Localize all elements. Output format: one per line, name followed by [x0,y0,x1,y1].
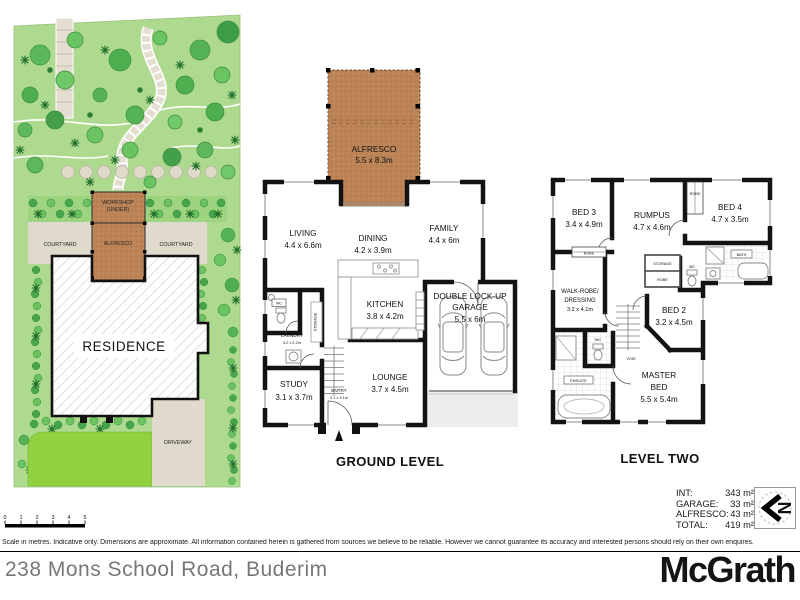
bath-label-box: BATH [731,250,752,258]
bed3-room-label: BED 3 [572,207,596,217]
scale-tick: 1 [19,515,22,521]
workshop-label-2: (UNDER) [107,207,130,213]
mcgrath-logo: McGrath [659,549,795,591]
area-label: ALFRESCO: [676,509,729,520]
site-alfresco-label: ALFRESCO [104,241,133,247]
area-label: GARAGE: [676,499,718,510]
storage-closet: STORAGE [311,302,322,342]
corridor-wc-label: WC [595,338,602,342]
ground-level-title: GROUND LEVEL [336,454,444,469]
entry-room-label: ENTRY [331,388,347,393]
robe-label-bed3: ROBE [584,252,595,256]
area-value: 33 m² [730,499,754,510]
scale-tick: 0 [3,515,6,521]
void-label: VOID [626,357,636,361]
area-value: 43 m² [730,509,754,520]
area-row-total: TOTAL:419 m² [676,520,754,531]
site-workshop-alfresco: WORKSHOP (UNDER) ALFRESCO [91,191,147,281]
storage-label: STORAGE [653,262,672,266]
driveway-label: DRIVEWAY [164,440,192,446]
area-label: TOTAL: [676,520,708,531]
floorplan-sheet: COURTYARD COURTYARD [0,0,800,600]
disclaimer-text: Scale in metres. Indicative only. Dimens… [2,539,799,546]
kitchen-room-dims: 3.8 x 4.2m [366,312,404,321]
study-room-label: STUDY [280,379,309,389]
bed3-room-dims: 3.4 x 4.9m [565,220,603,229]
master-room-label-1: MASTER [642,370,677,380]
mid-wc [687,270,697,286]
scale-tick: 3 [51,515,54,521]
ensuite-label-box: ENSUITE [564,376,593,384]
living-room-label: LIVING [289,228,316,238]
area-row-garage: GARAGE:33 m² [676,499,754,510]
courtyard-left-label: COURTYARD [43,242,76,248]
ground-storage-label: STORAGE [314,312,318,331]
level-two-title: LEVEL TWO [620,451,699,466]
ensuite-label: ENSUITE [570,379,587,383]
lawn [28,432,152,486]
ground-level-plan: WC STORAGE ALFRESCO 5.5 x 8.3m LIVING 4.… [250,58,522,473]
garage-room-dims: 5.5 x 6m [455,315,486,324]
laundry-room-label: LAUNDRY [281,333,303,338]
dining-room-label: DINING [358,233,387,243]
property-address: 238 Mons School Road, Buderim [5,558,328,582]
bed4-room-label: BED 4 [718,202,742,212]
area-row-int: INT:343 m² [676,488,754,499]
lounge-room-label: LOUNGE [372,372,408,382]
family-room-label: FAMILY [430,223,459,233]
rumpus-room-label: RUMPUS [634,210,670,220]
kitchen-room-label: KITCHEN [367,299,403,309]
scale-bar: 0 1 2 3 4 5 [2,512,94,534]
scale-tick: 4 [67,515,70,521]
rumpus-room-dims: 4.7 x 4.6m [633,223,671,232]
laundry-room-dims: 3.2 x 2.2m [283,341,301,345]
walkrobe-room-label-1: WALK-ROBE/ [561,289,599,295]
family-room-dims: 4.4 x 6m [429,236,460,245]
entry-room-dims: 2.1 x 3.1m [330,396,348,400]
alfresco-room-label: ALFRESCO [352,144,397,154]
garage-room-label-2: GARAGE [452,302,488,312]
north-arrow-icon: N [754,487,796,529]
garage-room-label-1: DOUBLE LOCK-UP [433,291,507,301]
workshop-label-1: WORKSHOP [102,200,134,206]
living-room-dims: 4.4 x 6.6m [284,241,322,250]
walkrobe-room-label-2: DRESSING [564,298,596,304]
level-two-plan: ROBE ROBE STORAGE ROBE BATH WC WC VOID [545,168,785,470]
area-summary: INT:343 m² GARAGE:33 m² ALFRESCO:43 m² T… [676,488,754,530]
alfresco-room-dims: 5.5 x 8.3m [355,156,393,165]
corridor-wc [593,344,603,360]
bed4-room-dims: 4.7 x 3.5m [711,215,749,224]
scale-tick: 2 [35,515,38,521]
bed2-room-label: BED 2 [662,305,686,315]
dining-room-dims: 4.2 x 3.9m [354,246,392,255]
site-plan: COURTYARD COURTYARD [8,10,244,535]
bath-label: BATH [737,253,747,257]
mid-wc-label: WC [689,265,696,269]
area-row-alfresco: ALFRESCO:43 m² [676,509,754,520]
ground-wc-label: WC [276,302,283,306]
area-value: 419 m² [725,520,754,531]
bed2-room-dims: 3.2 x 4.5m [655,318,693,327]
residence-label: RESIDENCE [82,339,165,354]
courtyard-right-label: COURTYARD [159,242,192,248]
area-value: 343 m² [725,488,754,499]
compass-north-label: N [774,502,794,515]
study-room-dims: 3.1 x 3.7m [275,393,313,402]
scale-tick: 5 [83,515,86,521]
site-residence: RESIDENCE [52,256,208,423]
area-label: INT: [676,488,693,499]
robe-label-mid: ROBE [657,278,668,282]
wc-label-box: WC [272,299,286,307]
robe-label-bed4: ROBE [690,192,701,196]
garage-apron [427,391,518,427]
master-room-dims: 5.5 x 5.4m [640,395,678,404]
master-room-label-2: BED [650,382,667,392]
lounge-room-dims: 3.7 x 4.5m [371,385,409,394]
walkrobe-room-dims: 3.2 x 4.1m [567,307,593,313]
